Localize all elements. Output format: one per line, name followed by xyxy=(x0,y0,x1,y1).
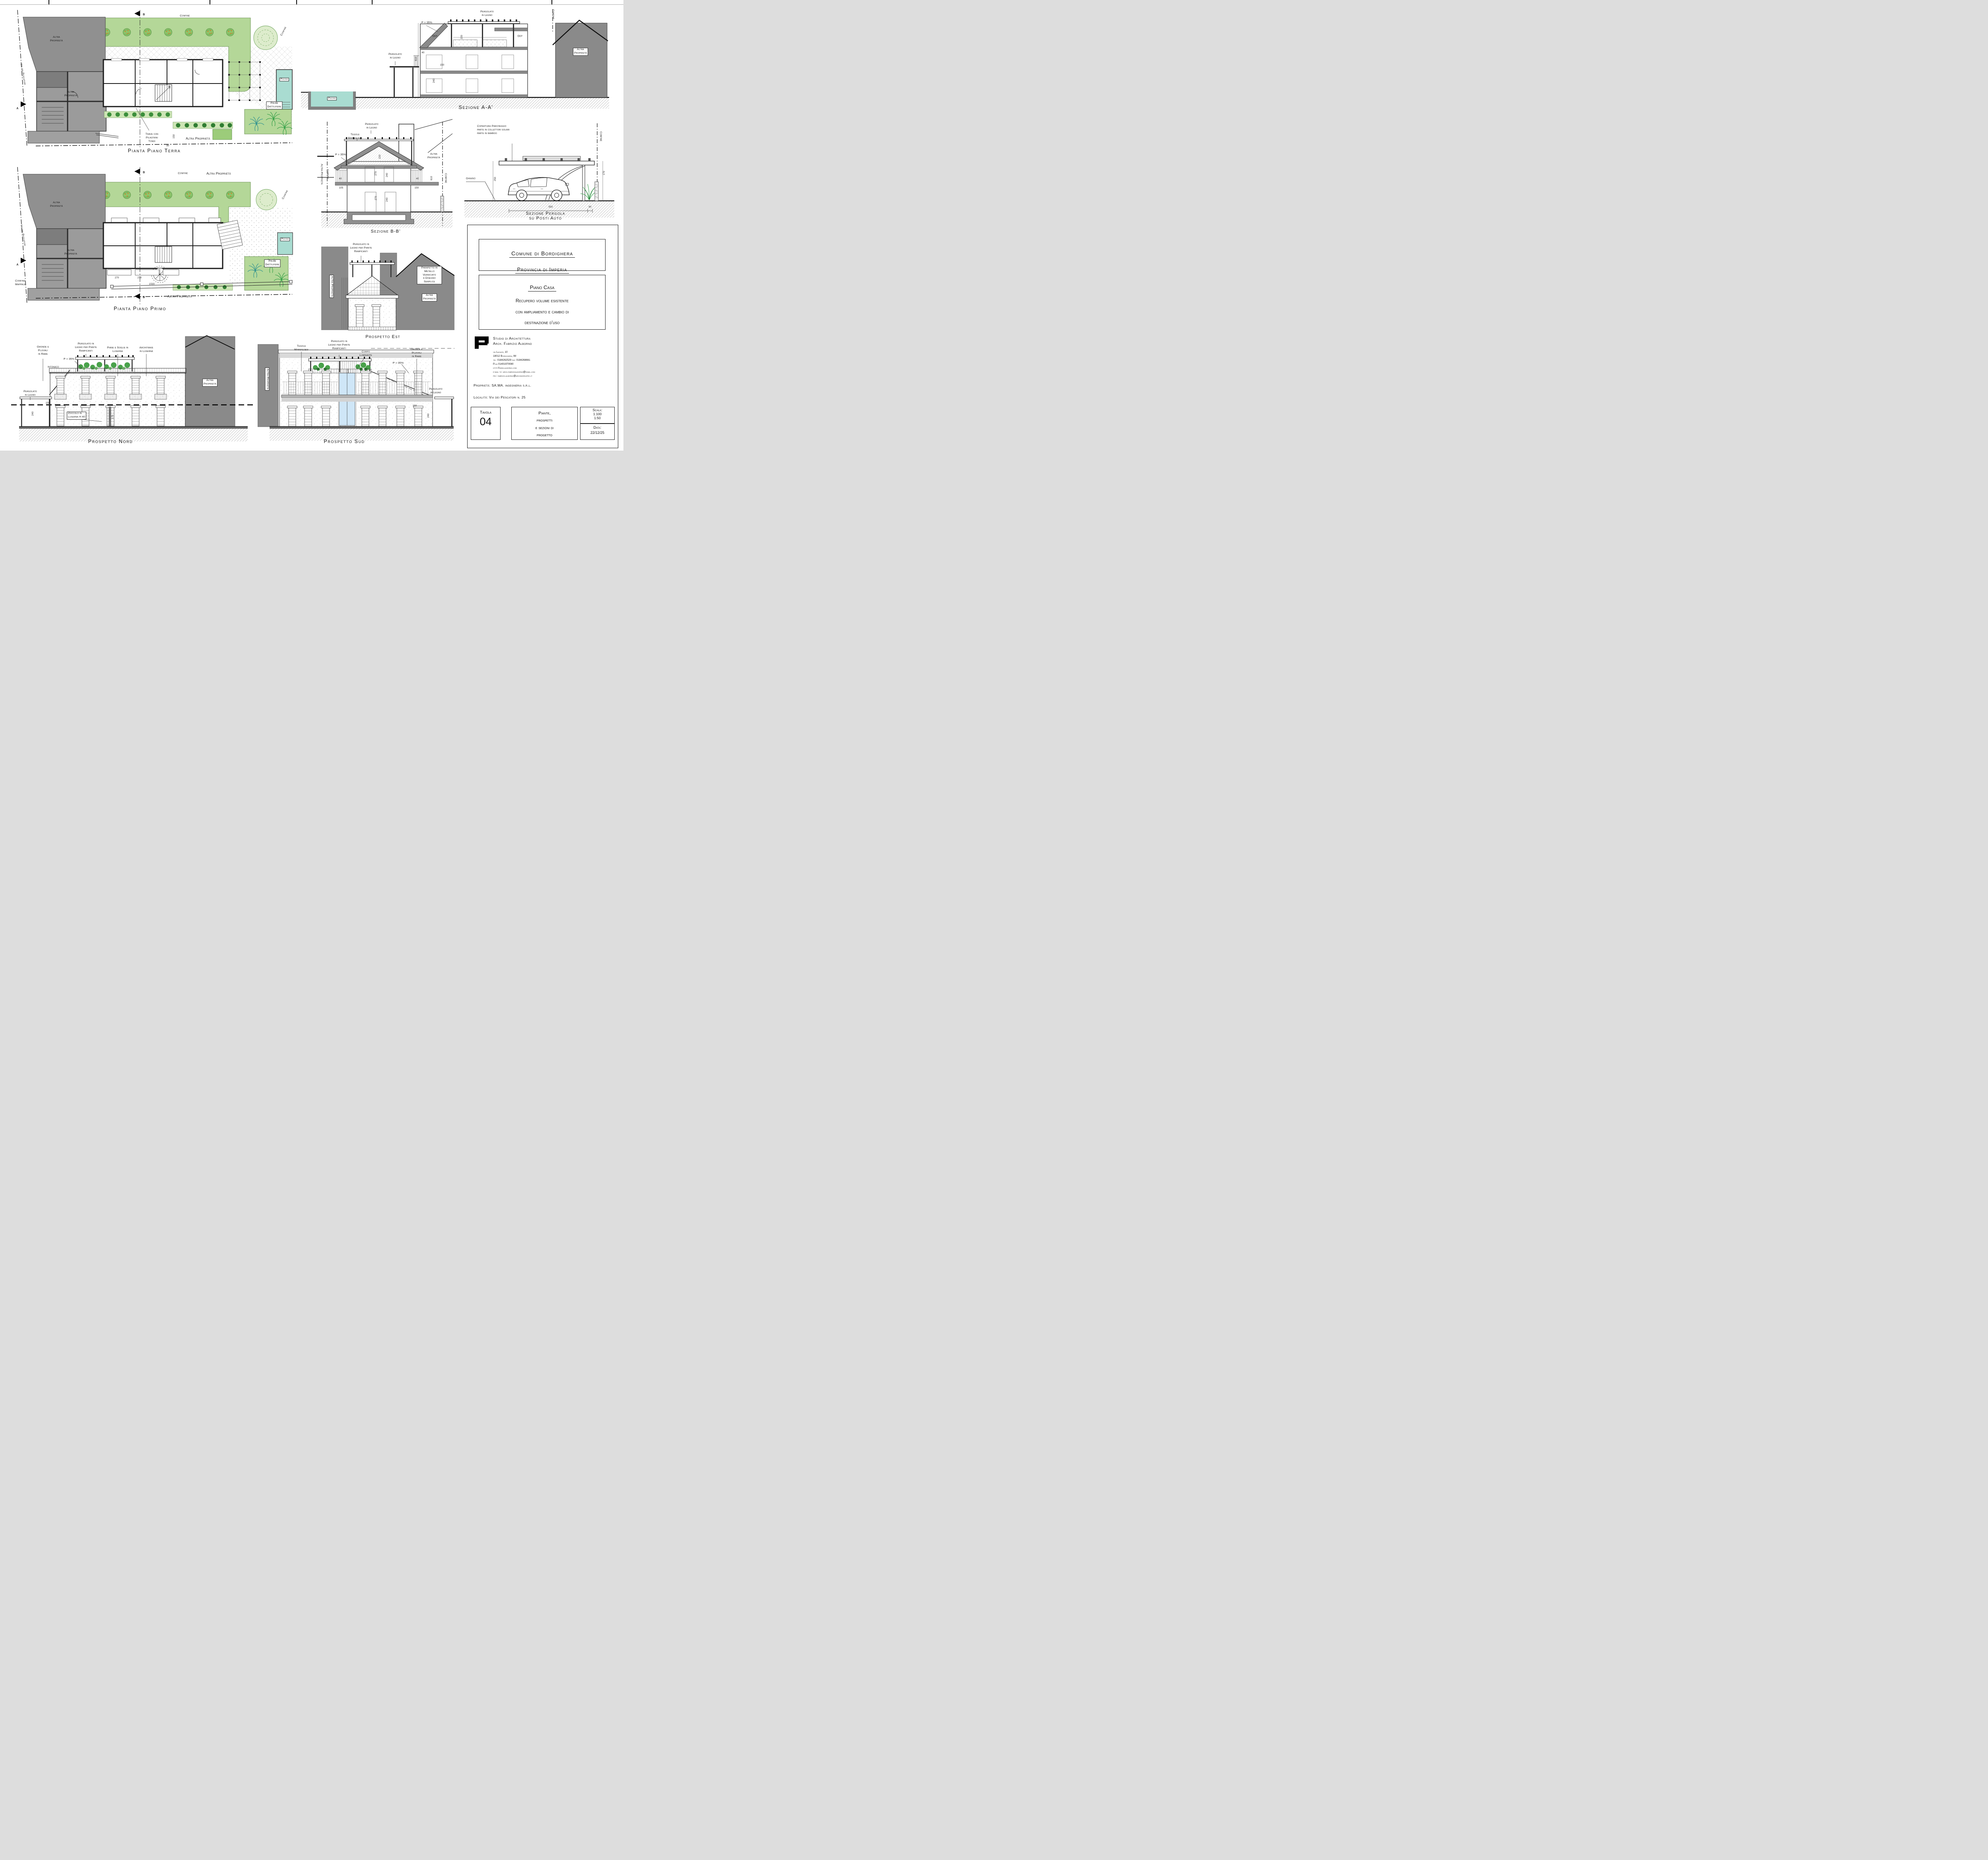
title-pianta-piano-terra: Pianta Piano Terra xyxy=(128,148,181,154)
project-description: Recupero volume esistentecon ampliamento… xyxy=(479,295,605,328)
pianta-piano-terra-drawing xyxy=(12,10,295,158)
dim-240: 240 xyxy=(433,79,435,83)
prospetto-est-drawing xyxy=(321,238,454,340)
prospetto-sud-drawing xyxy=(258,333,454,447)
dim-150: 150 xyxy=(413,405,417,407)
dim-1530: 1530 xyxy=(149,283,155,286)
sheet-content-text: Piante, prospetti e sezioni di progetto xyxy=(512,410,577,439)
architect-name: Arch. Fabrizio Alborno xyxy=(493,342,532,346)
studio-name: Studio di Architettura xyxy=(493,336,531,340)
dim-150: 150 xyxy=(440,64,445,66)
dim-40: 40 xyxy=(339,178,342,180)
dim-250: 250 xyxy=(494,177,497,181)
scale-value-2: 1:50 xyxy=(580,416,614,420)
title-prospetto-nord: Prospetto Nord xyxy=(88,439,133,444)
scale-label: Scala: xyxy=(580,408,614,412)
title-pianta-piano-primo: Pianta Piano Primo xyxy=(114,306,166,311)
project-name: Piano Casa xyxy=(479,278,605,292)
sheet-tick xyxy=(551,0,552,4)
panel-sezione-pergola: Copertura Parcheggio parte in collettori… xyxy=(461,121,618,223)
drawing-sheet: Confine Confine Altra Proprietà Via dei … xyxy=(0,0,623,451)
title-prospetto-sud: Prospetto Sud xyxy=(324,439,365,444)
title-sezione-b-b: Sezione B-B' xyxy=(371,229,400,234)
section-marker-b: B xyxy=(143,296,145,299)
sheet-tick xyxy=(296,0,297,4)
dim-170: 170 xyxy=(603,171,606,175)
panel-pianta-piano-terra: Confine Confine Altra Proprietà Via dei … xyxy=(12,10,295,158)
dim-270: 270 xyxy=(375,171,377,176)
sheet-number-box: Tavola 04 xyxy=(471,407,501,440)
scale-box: Scala: 1:100 1:50 xyxy=(580,407,615,424)
province-name: Provincia di Imperia xyxy=(479,261,605,274)
dim-550: 550 xyxy=(549,206,553,208)
dim-105: 105 xyxy=(339,187,344,189)
dim-240: 240 xyxy=(386,198,388,202)
date-value: 22/12/25 xyxy=(580,431,614,435)
sheet-number-value: 04 xyxy=(471,416,500,428)
dim-80: 80 xyxy=(588,206,591,208)
scale-value-1: 1:100 xyxy=(580,412,614,416)
panel-prospetto-sud: Tegole Marsigliesi Pergolato in Legno pe… xyxy=(258,333,454,447)
dim-40: 40 xyxy=(421,52,424,54)
dim-220: 220 xyxy=(379,155,381,159)
prospetto-nord-drawing xyxy=(11,333,256,447)
dim-170: 170 xyxy=(112,415,114,419)
dim-240: 240 xyxy=(427,414,430,418)
panel-pianta-piano-primo: Confine Altra Proprietà Confine Altra Pr… xyxy=(12,167,295,315)
pianta-piano-primo-drawing xyxy=(12,167,295,315)
panel-prospetto-nord: Gronde e Pluviali in Rame Pergolato in L… xyxy=(11,333,256,447)
sezione-a-a-drawing xyxy=(295,7,613,114)
studio-contacts: via Lagazzi, 1018012 Bordighera, IMtel: … xyxy=(493,350,535,378)
date-box: Data: 22/12/25 xyxy=(580,424,615,440)
title-block-project-box: Piano Casa Recupero volume esistentecon … xyxy=(479,275,606,330)
section-marker-b: B xyxy=(143,171,145,174)
dim-40: 40 xyxy=(416,178,419,180)
panel-sezione-a-a: Pergolato in Legno Pergolato in Legno P … xyxy=(295,7,613,114)
section-marker-b: B xyxy=(143,14,145,16)
title-block-municipality-box: Comune di Bordighera Provincia di Imperi… xyxy=(479,239,606,271)
dim-220: 220 xyxy=(347,369,349,373)
sheet-content-box: Piante, prospetti e sezioni di progetto xyxy=(511,407,578,440)
dim-610: 610 xyxy=(415,57,417,61)
municipality-name: Comune di Bordighera xyxy=(479,244,605,258)
owner-line: Proprietà: SA.MA. ingegneria s.r.l. xyxy=(474,383,531,387)
dim-240: 240 xyxy=(386,173,388,177)
panel-prospetto-est: Pergolato in Legno per Piante Rampicanti… xyxy=(321,238,454,340)
dim-150: 150 xyxy=(415,187,419,189)
dim-240: 240 xyxy=(32,412,34,416)
studio-logo-icon xyxy=(474,336,490,349)
sezione-pergola-drawing xyxy=(461,121,618,223)
dim-150: 150 xyxy=(173,134,175,139)
location-line: Località: Via dei Pescatori n. 25 xyxy=(474,395,526,399)
panel-sezione-b-b: Pergolato in Legno Tegole Marsigliesi P … xyxy=(317,119,454,235)
sheet-tick xyxy=(372,0,373,4)
date-label: Data: xyxy=(580,426,614,430)
title-sezione-pergola: Sezione Pergola su Posti Auto xyxy=(526,211,565,221)
sheet-frame-line xyxy=(0,4,623,5)
dim-220: 220 xyxy=(461,35,463,39)
sheet-number-label: Tavola xyxy=(471,410,500,415)
dim-270: 270 xyxy=(138,277,142,279)
dim-150: 150 xyxy=(46,402,50,404)
sheet-tick xyxy=(49,0,49,4)
dim-270: 270 xyxy=(375,196,377,200)
dim-270: 270 xyxy=(115,277,119,279)
dim-90: 90 xyxy=(166,145,169,147)
dim-610: 610 xyxy=(431,176,433,181)
title-sezione-a-a: Sezione A-A' xyxy=(458,105,493,110)
section-marker-a: A xyxy=(16,107,18,110)
title-block: Comune di Bordighera Provincia di Imperi… xyxy=(467,225,618,448)
section-marker-a: A xyxy=(16,264,18,266)
sheet-tick xyxy=(210,0,210,4)
